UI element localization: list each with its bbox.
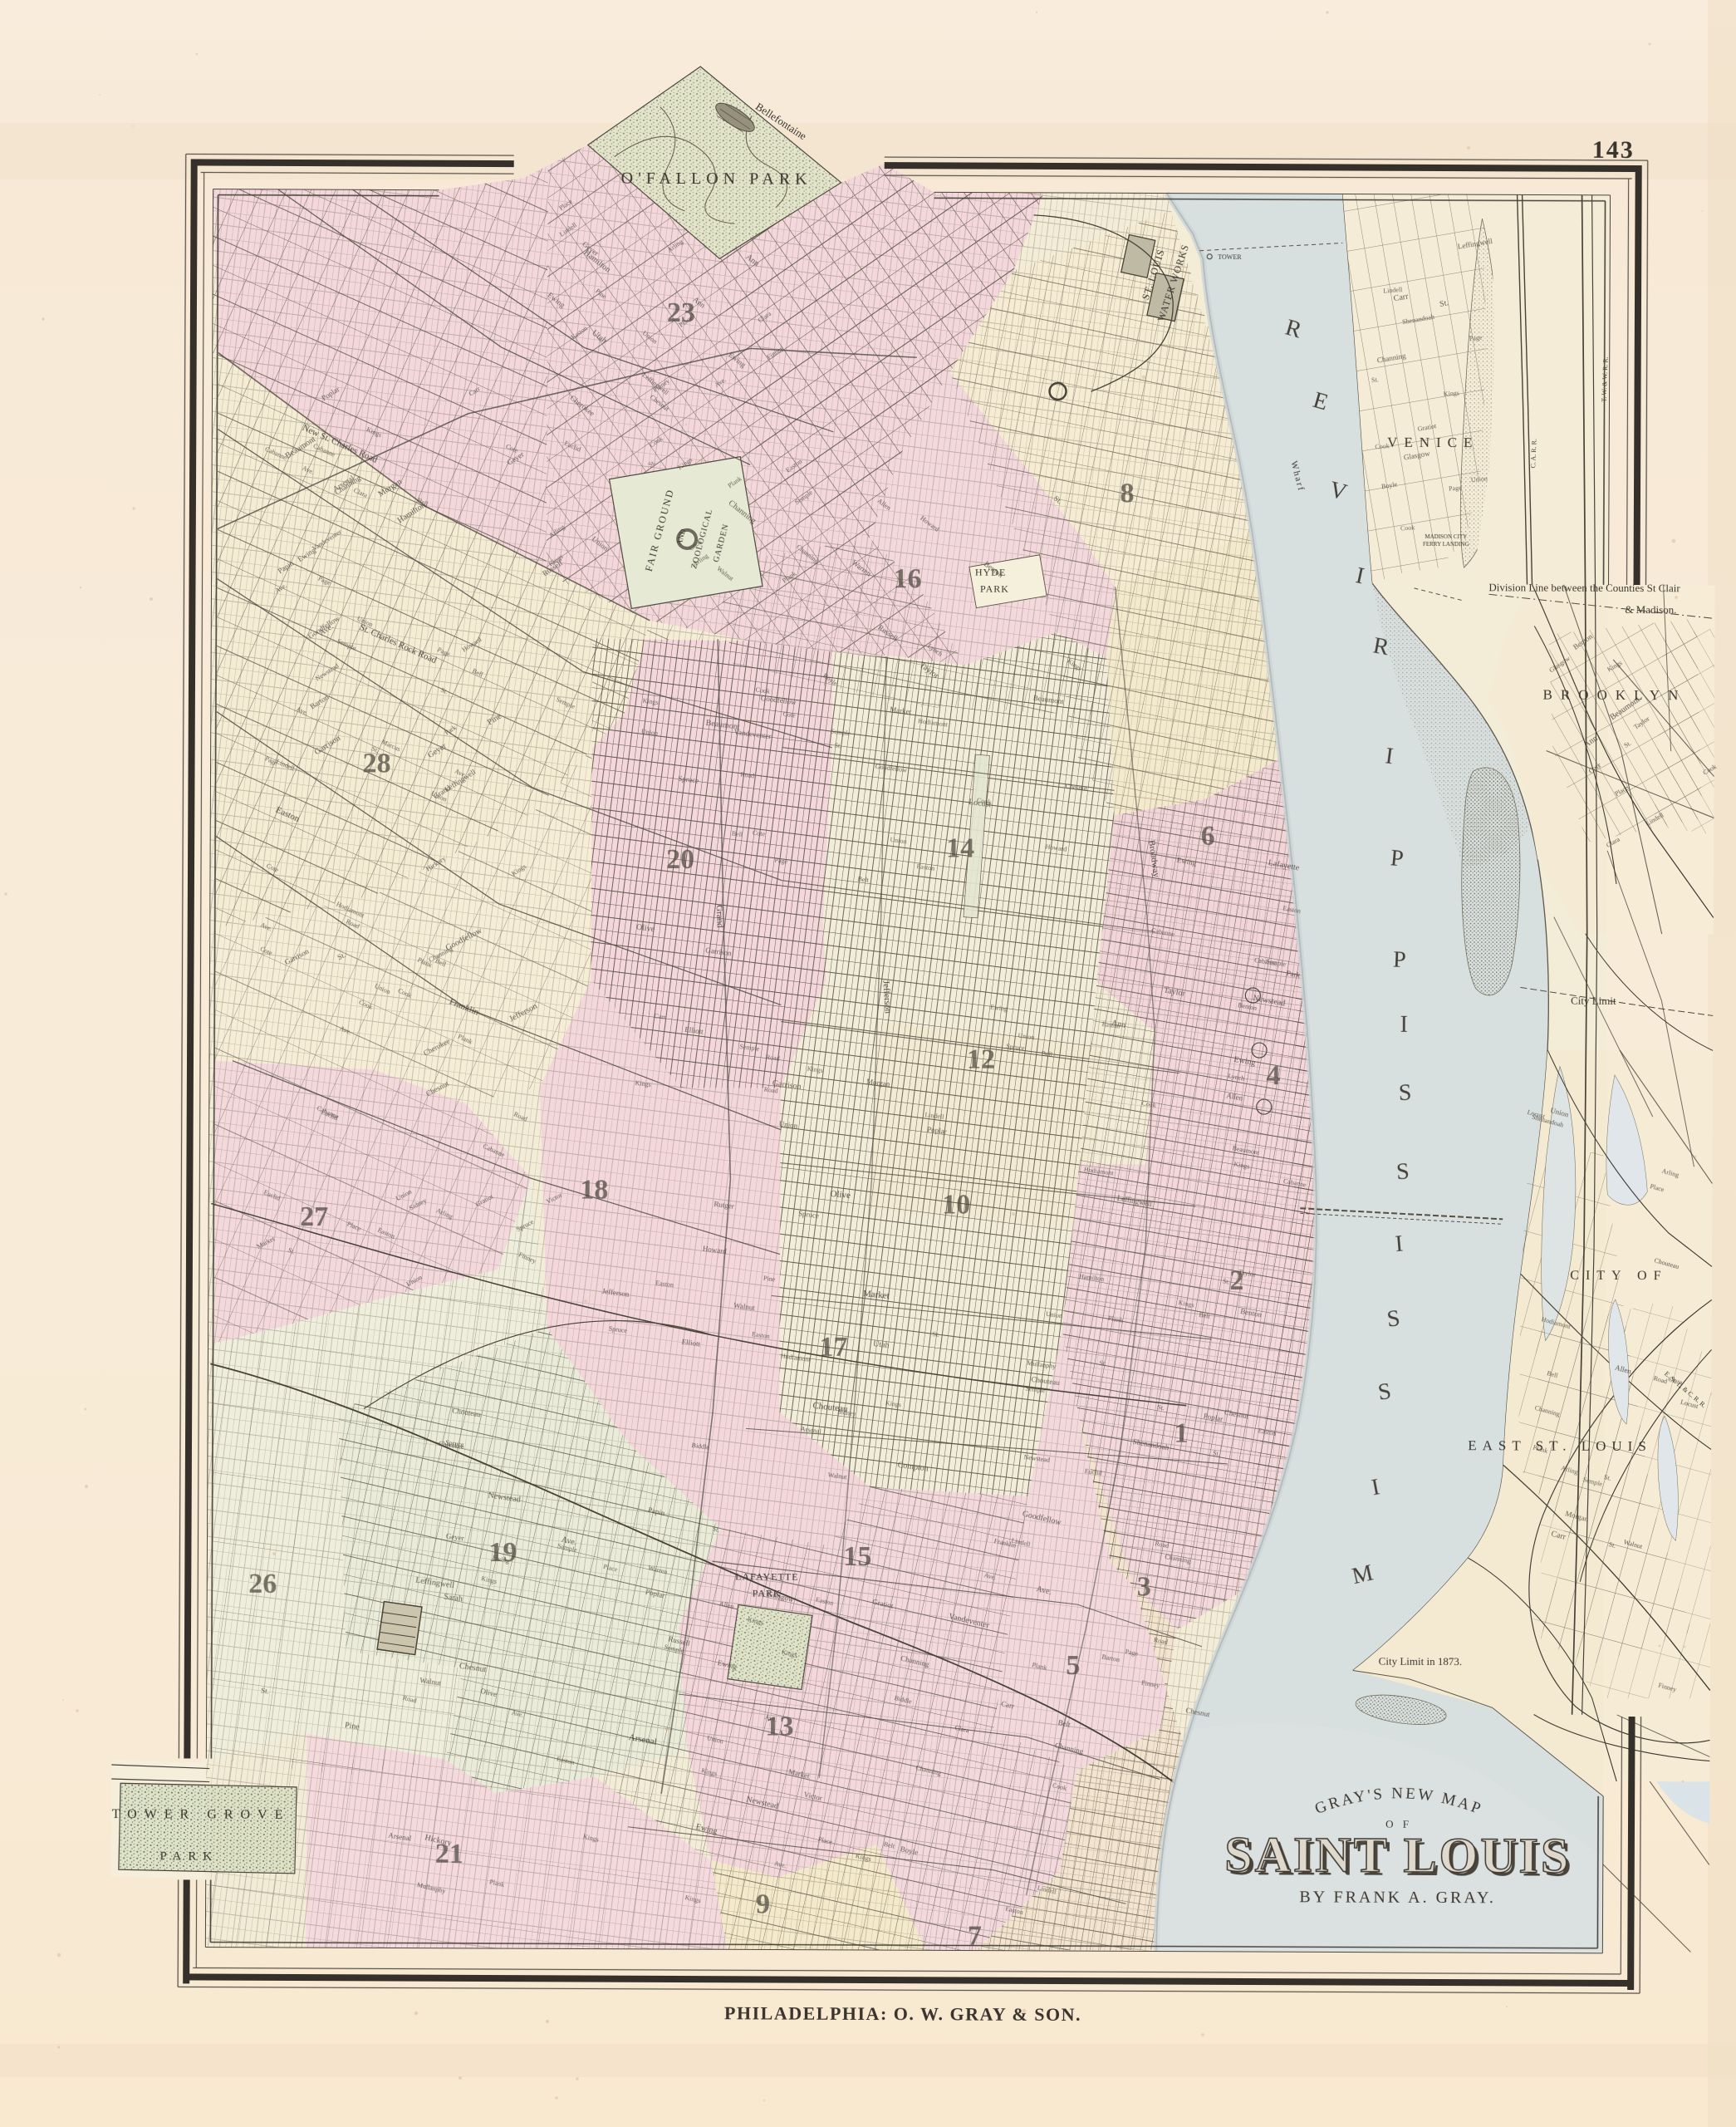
svg-text:O'FALLON PARK: O'FALLON PARK (621, 169, 812, 189)
svg-text:BROOKLYN: BROOKLYN (1543, 687, 1687, 704)
svg-text:SAINT LOUIS: SAINT LOUIS (1224, 1827, 1571, 1884)
svg-text:PHILADELPHIA: O. W. GRAY & SO: PHILADELPHIA: O. W. GRAY & SON. (724, 2002, 1081, 2025)
svg-text:5: 5 (1066, 1650, 1080, 1681)
svg-text:PARK: PARK (980, 583, 1009, 595)
svg-text:14: 14 (946, 833, 974, 863)
svg-text:17: 17 (819, 1332, 847, 1363)
svg-text:TOWER GROVE: TOWER GROVE (112, 1807, 291, 1822)
svg-text:TOWER: TOWER (1218, 253, 1242, 261)
svg-text:143: 143 (1592, 136, 1635, 164)
svg-text:1: 1 (1174, 1418, 1188, 1449)
svg-text:19: 19 (488, 1537, 517, 1568)
svg-text:I: I (1400, 1012, 1407, 1038)
svg-text:P: P (1390, 845, 1405, 872)
svg-text:7: 7 (968, 1921, 982, 1952)
svg-text:VENICE: VENICE (1387, 435, 1479, 450)
svg-text:City Limit: City Limit (1571, 995, 1616, 1007)
svg-text:6: 6 (1201, 821, 1215, 852)
svg-text:HYDE: HYDE (975, 567, 1006, 578)
svg-text:23: 23 (667, 297, 695, 328)
svg-text:LAFAYETTE: LAFAYETTE (735, 1570, 798, 1582)
svg-text:P: P (1392, 947, 1406, 974)
svg-text:S: S (1395, 1158, 1410, 1185)
svg-text:16: 16 (893, 563, 921, 594)
svg-text:15: 15 (843, 1541, 871, 1572)
svg-text:PARK: PARK (753, 1587, 782, 1599)
svg-text:EAST ST. LOUIS: EAST ST. LOUIS (1468, 1437, 1652, 1454)
svg-text:CITY OF: CITY OF (1570, 1269, 1667, 1284)
svg-text:10: 10 (942, 1189, 970, 1220)
svg-text:4: 4 (1266, 1060, 1280, 1091)
svg-text:& Madison.: & Madison. (1625, 603, 1676, 616)
svg-text:9: 9 (756, 1889, 770, 1919)
svg-text:MADISON CITY: MADISON CITY (1425, 533, 1467, 540)
svg-text:City Limit in 1873.: City Limit in 1873. (1379, 1655, 1462, 1668)
svg-text:3: 3 (1137, 1571, 1151, 1602)
svg-text:12: 12 (967, 1044, 995, 1075)
svg-text:2: 2 (1229, 1265, 1243, 1296)
svg-text:20: 20 (666, 844, 694, 875)
svg-text:Olive: Olive (830, 1189, 851, 1201)
svg-text:21: 21 (435, 1839, 463, 1869)
svg-text:26: 26 (248, 1569, 277, 1599)
svg-text:FERRY LANDING: FERRY LANDING (1423, 541, 1469, 548)
svg-text:Grand: Grand (714, 905, 725, 928)
svg-text:S: S (1398, 1080, 1412, 1106)
svg-text:13: 13 (765, 1711, 793, 1741)
svg-text:28: 28 (362, 748, 390, 779)
svg-text:BY FRANK A. GRAY.: BY FRANK A. GRAY. (1299, 1888, 1496, 1907)
svg-text:Division Line between the Coun: Division Line between the Counties St Cl… (1488, 581, 1680, 594)
svg-text:27: 27 (300, 1201, 328, 1232)
svg-text:8: 8 (1120, 478, 1134, 508)
svg-text:PARK: PARK (159, 1849, 218, 1863)
svg-text:18: 18 (580, 1174, 608, 1205)
